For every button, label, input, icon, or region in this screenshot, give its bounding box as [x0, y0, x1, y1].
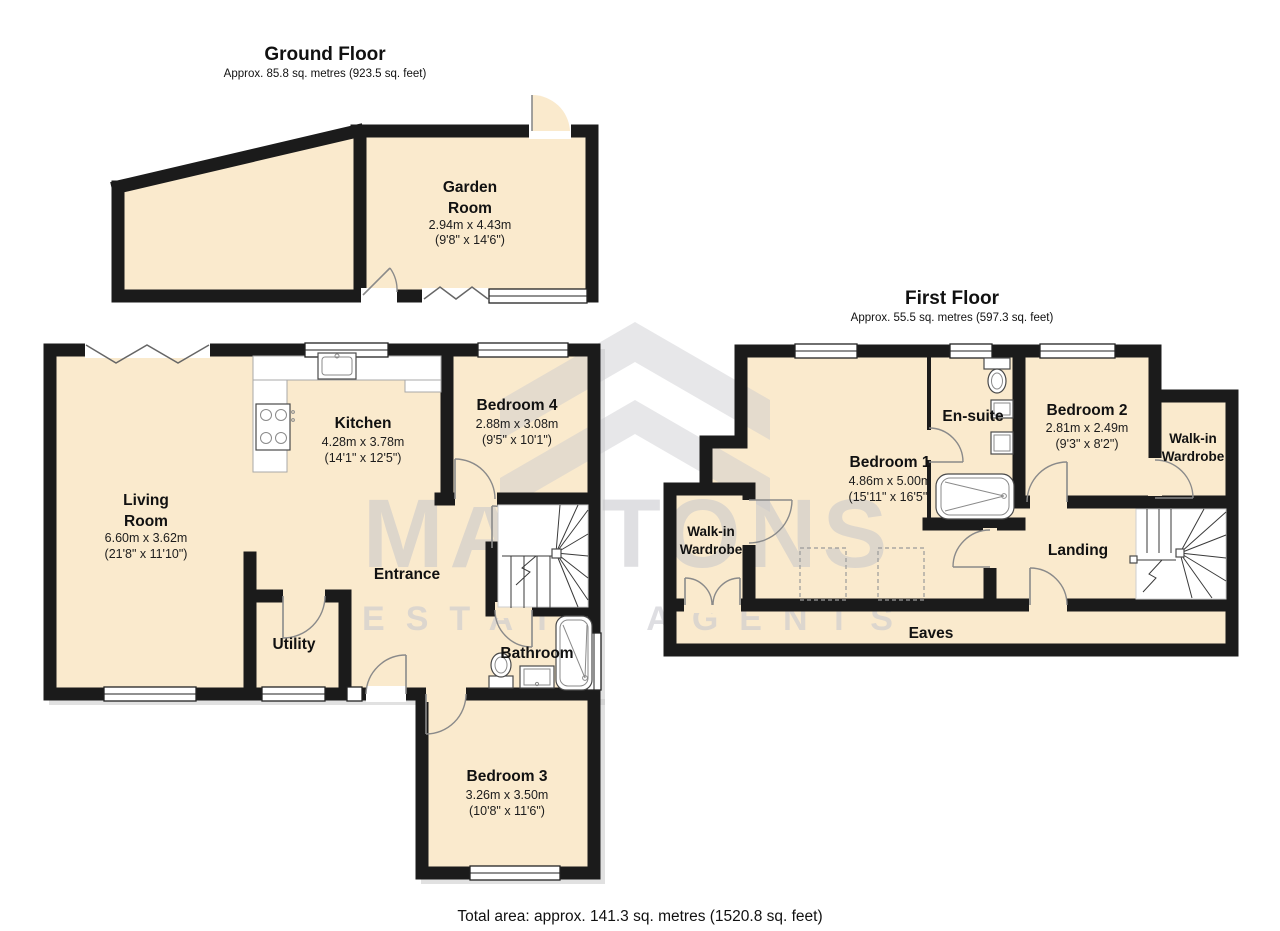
- room-dim-bedroom-2: 2.81m x 2.49m: [1046, 421, 1129, 435]
- room-label-living-room: Room: [124, 513, 168, 530]
- bathtub-icon: [936, 474, 1014, 519]
- room-label-walk-in-wardrobe-left: Wardrobe: [680, 542, 743, 557]
- floor-plan: MANTONS ESTATE AGENTS Garden Room 2.94m …: [0, 0, 1280, 931]
- room-label-walk-in-wardrobe-right: Walk-in: [1169, 431, 1217, 446]
- staircase-icon: [1130, 509, 1226, 599]
- room-dim-bedroom-3: 3.26m x 3.50m: [466, 788, 549, 802]
- room-dim-bedroom-1: 4.86m x 5.00m: [849, 474, 932, 488]
- room-label-bedroom-2: Bedroom 2: [1047, 402, 1128, 419]
- sink-icon: [520, 666, 554, 688]
- ground-floor-title: Ground Floor: [264, 44, 386, 65]
- room-dim-bedroom-3: (10'8" x 11'6"): [469, 804, 545, 818]
- bifold-opening: [422, 288, 489, 304]
- total-area-note: Total area: approx. 141.3 sq. metres (15…: [457, 908, 822, 925]
- room-dim-kitchen: (14'1" x 12'5"): [325, 451, 402, 465]
- room-label-landing: Landing: [1048, 542, 1108, 559]
- room-label-eaves: Eaves: [909, 625, 954, 642]
- room-dim-bedroom-4: (9'5" x 10'1"): [482, 433, 552, 447]
- room-label-bedroom-3: Bedroom 3: [467, 768, 548, 785]
- room-dim-bedroom-1: (15'11" x 16'5"): [849, 490, 932, 504]
- first-floor-title: First Floor: [905, 288, 1000, 309]
- room-label-kitchen: Kitchen: [335, 415, 392, 432]
- room-label-utility: Utility: [272, 636, 315, 653]
- room-label-bathroom: Bathroom: [500, 645, 573, 662]
- room-label-en-suite: En-suite: [942, 408, 1004, 425]
- room-dim-bedroom-2: (9'3" x 8'2"): [1056, 437, 1119, 451]
- room-label-walk-in-wardrobe-left: Walk-in: [687, 524, 735, 539]
- room-dim-living-room: 6.60m x 3.62m: [105, 531, 188, 545]
- floor-plan-page: MANTONS ESTATE AGENTS Garden Room 2.94m …: [0, 0, 1280, 931]
- room-label-bedroom-4: Bedroom 4: [477, 397, 558, 414]
- ground-floor-area-note: Approx. 85.8 sq. metres (923.5 sq. feet): [224, 68, 427, 80]
- room-dim-garden-room: 2.94m x 4.43m: [429, 218, 512, 232]
- room-dim-garden-room: (9'8" x 14'6"): [435, 233, 505, 247]
- room-label-garden-room: Garden: [443, 179, 497, 196]
- room-label-entrance: Entrance: [374, 566, 441, 583]
- room-label-bedroom-1: Bedroom 1: [850, 454, 931, 471]
- door-swing: [532, 95, 570, 131]
- room-label-walk-in-wardrobe-right: Wardrobe: [1162, 449, 1225, 464]
- hob-icon: [256, 404, 294, 450]
- kitchen-sink-icon: [318, 353, 356, 379]
- room-dim-living-room: (21'8" x 11'10"): [105, 547, 188, 561]
- room-label-living-room: Living: [123, 492, 169, 509]
- first-floor-area-note: Approx. 55.5 sq. metres (597.3 sq. feet): [851, 312, 1054, 324]
- staircase-icon: [498, 505, 588, 608]
- door-opening: [361, 288, 397, 304]
- room-label-garden-room: Room: [448, 200, 492, 217]
- room-dim-bedroom-4: 2.88m x 3.08m: [476, 417, 559, 431]
- window: [347, 687, 362, 701]
- room-dim-kitchen: 4.28m x 3.78m: [322, 435, 405, 449]
